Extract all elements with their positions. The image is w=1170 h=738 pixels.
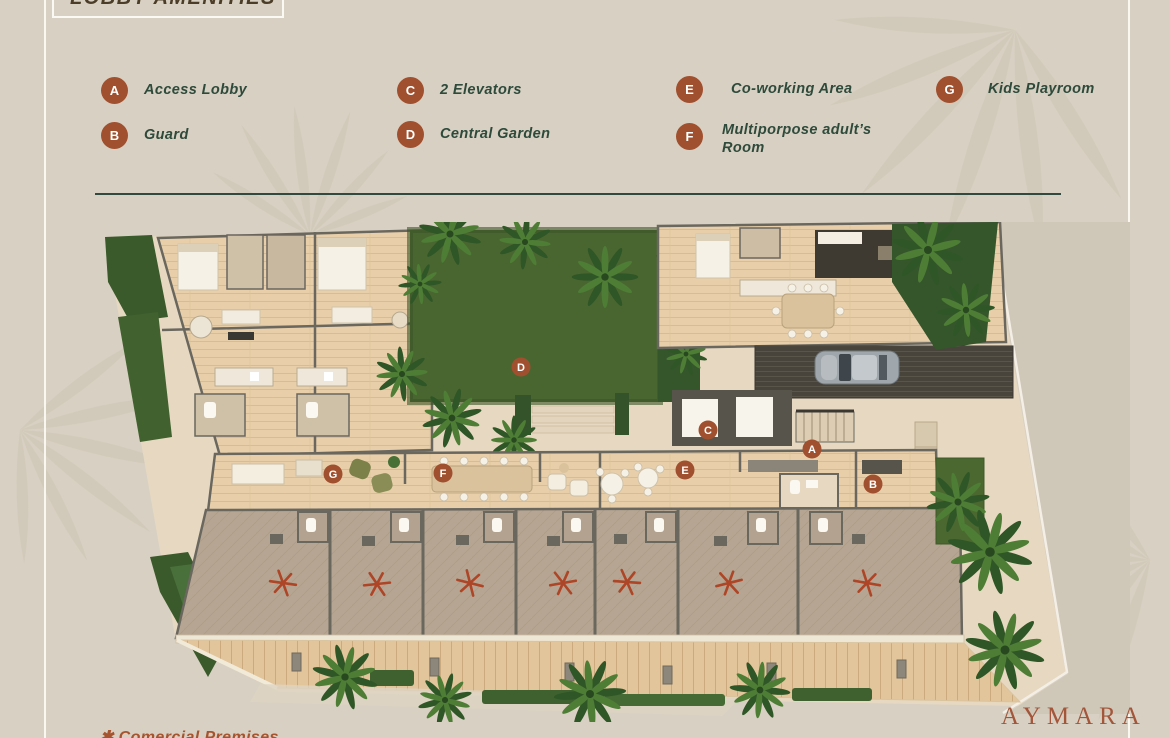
legend-badge-d: D bbox=[397, 121, 424, 148]
commercial-premises-footnote: ✱ Comercial Premises bbox=[100, 727, 279, 738]
svg-text:D: D bbox=[517, 362, 525, 374]
plan-marker-a: A bbox=[803, 440, 822, 459]
stairs bbox=[796, 411, 854, 442]
sofa bbox=[332, 307, 372, 323]
legend-item-central-garden: D Central Garden bbox=[397, 121, 550, 148]
page-title: LOBBY AMENITIES bbox=[70, 0, 276, 10]
plan-marker-d: D bbox=[512, 358, 531, 377]
page-border-left bbox=[44, 0, 46, 738]
armchair bbox=[570, 480, 588, 496]
bathroom bbox=[195, 394, 245, 436]
round-rug bbox=[190, 316, 212, 338]
side-table bbox=[559, 463, 569, 473]
legend-item-multipurpose-room: F Multiporpose adult’s Room bbox=[676, 123, 894, 157]
kitchen-counter bbox=[297, 368, 347, 386]
svg-text:C: C bbox=[704, 425, 712, 437]
legend-label-access-lobby: Access Lobby bbox=[144, 81, 247, 99]
boardwalk bbox=[177, 640, 1020, 722]
legend-item-coworking: E Co-working Area bbox=[676, 76, 852, 103]
bathroom bbox=[267, 235, 305, 289]
brochure-page: LOBBY AMENITIES A Access Lobby B Guard C… bbox=[0, 0, 1170, 738]
legend-label-guard: Guard bbox=[144, 126, 189, 144]
plan-marker-c: C bbox=[699, 421, 718, 440]
daybed bbox=[232, 464, 284, 484]
plan-marker-g: G bbox=[324, 465, 343, 484]
section-divider bbox=[95, 193, 1061, 195]
svg-text:A: A bbox=[808, 444, 816, 456]
legend-label-multipurpose-room: Multiporpose adult’s Room bbox=[722, 121, 894, 157]
legend-label-central-garden: Central Garden bbox=[440, 125, 550, 143]
amenity-strip bbox=[208, 450, 938, 511]
legend-item-access-lobby: A Access Lobby bbox=[101, 77, 247, 104]
car bbox=[815, 351, 899, 384]
legend-badge-c: C bbox=[397, 77, 424, 104]
svg-text:G: G bbox=[329, 469, 338, 481]
elevators bbox=[672, 390, 792, 446]
legend-badge-e: E bbox=[676, 76, 703, 103]
legend-item-kids-playroom: G Kids Playroom bbox=[936, 76, 1095, 103]
kitchen-counter bbox=[215, 368, 273, 386]
sofa bbox=[222, 310, 260, 324]
legend-badge-a: A bbox=[101, 77, 128, 104]
tv bbox=[228, 332, 254, 340]
svg-text:E: E bbox=[681, 465, 688, 477]
left-apartments bbox=[158, 230, 432, 456]
svg-text:F: F bbox=[440, 468, 447, 480]
garden-steps bbox=[532, 406, 614, 413]
bathroom bbox=[297, 394, 349, 436]
plan-marker-f: F bbox=[434, 464, 453, 483]
legend-badge-b: B bbox=[101, 122, 128, 149]
sofa bbox=[818, 232, 862, 244]
svg-text:B: B bbox=[869, 479, 877, 491]
plant bbox=[388, 456, 400, 468]
legend-label-kids-playroom: Kids Playroom bbox=[988, 80, 1095, 98]
elevator-cabin bbox=[736, 397, 773, 437]
legend-label-elevators: 2 Elevators bbox=[440, 81, 522, 99]
legend-label-coworking: Co-working Area bbox=[731, 80, 852, 98]
commercial-premises bbox=[176, 508, 964, 643]
legend-badge-g: G bbox=[936, 76, 963, 103]
legend-item-guard: B Guard bbox=[101, 122, 189, 149]
floor-plan: A B C D E F G bbox=[100, 222, 1170, 722]
table bbox=[392, 312, 408, 328]
legend-badge-f: F bbox=[676, 123, 703, 150]
guard-desk bbox=[862, 460, 902, 474]
title-box: LOBBY AMENITIES bbox=[52, 0, 284, 18]
crib bbox=[296, 460, 322, 476]
planter bbox=[615, 393, 629, 435]
legend-item-elevators: C 2 Elevators bbox=[397, 77, 522, 104]
armchair bbox=[548, 474, 566, 490]
plan-marker-e: E bbox=[676, 461, 695, 480]
bathroom bbox=[740, 228, 780, 258]
bathroom bbox=[227, 235, 263, 289]
brand-logo: AYMARA bbox=[1001, 703, 1146, 731]
plan-marker-b: B bbox=[864, 475, 883, 494]
